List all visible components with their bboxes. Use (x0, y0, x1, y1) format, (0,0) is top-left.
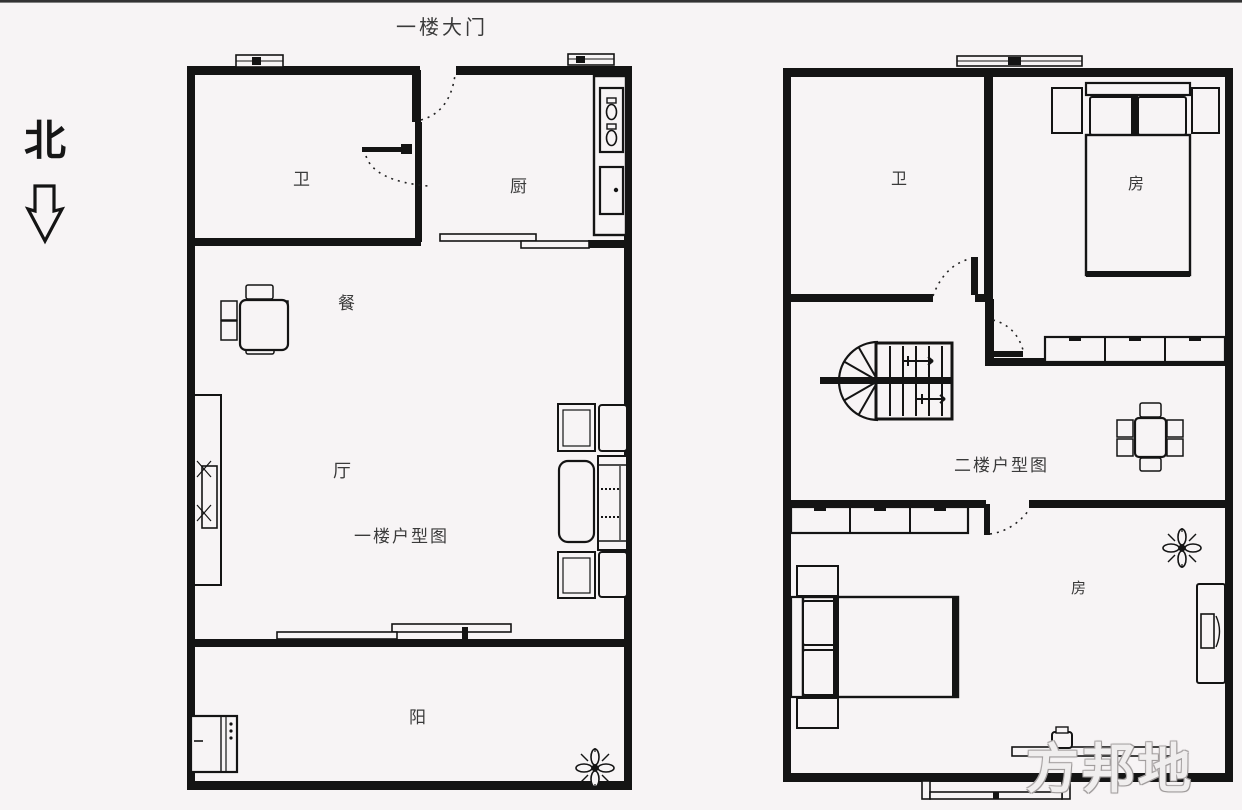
floor2-bathroom-label: 卫 (891, 172, 908, 188)
floor2-bedroom2-door (984, 504, 1029, 535)
tv-cabinet (598, 456, 627, 550)
staircase (820, 342, 952, 420)
plant-icon-floor2 (1163, 528, 1201, 568)
floor1-entrance-label: 一楼大门 (396, 18, 488, 38)
floorplan-drawing (0, 0, 1242, 810)
balcony-sliding-door (277, 624, 511, 639)
floor1-window-right (568, 54, 614, 65)
stove-icon (600, 88, 623, 152)
floor1-living-label: 厅 (333, 462, 352, 480)
floor1-kitchen-label: 厨 (510, 178, 528, 195)
north-label: 北 (24, 120, 66, 162)
wardrobe-top-bedroom (1045, 337, 1225, 362)
floorplan-image: 北 一楼大门 卫 厨 餐 厅 一楼户型图 阳 卫 房 二楼户型图 房 方邦地产 (0, 0, 1242, 810)
floor2-bedroom1-door (991, 320, 1023, 357)
floor2-plan (783, 56, 1233, 799)
sofa-set (558, 404, 627, 598)
wardrobe-bottom-bedroom (791, 507, 968, 533)
north-arrow-icon (28, 186, 62, 241)
kitchen-sliding-door (440, 234, 589, 248)
plant-icon-floor1 (576, 748, 614, 788)
dining-table-set (221, 285, 288, 354)
floor1-plan (187, 54, 632, 790)
floor1-title: 一楼户型图 (354, 528, 449, 545)
floor2-bedroom-bottom-label: 房 (1071, 581, 1087, 596)
floor2-bedroom-top-label: 房 (1128, 177, 1145, 193)
floor1-window-left (236, 55, 283, 67)
kitchen-counter (594, 76, 626, 235)
floor1-bathroom-label: 卫 (293, 171, 311, 188)
bed-bottom-bedroom (791, 566, 958, 728)
bedroom-side-cabinet (1197, 584, 1225, 683)
floor1-dining-label: 餐 (338, 295, 356, 312)
floor2-bathroom-door (933, 257, 978, 296)
floor2-title: 二楼户型图 (954, 457, 1049, 474)
top-edge-line (0, 0, 1242, 3)
floor1-entrance-door (412, 70, 455, 122)
hall-table-set (1117, 403, 1183, 471)
agency-watermark: 方邦地产 (1026, 727, 1242, 810)
sink-icon (600, 167, 623, 214)
floor2-window-top (957, 56, 1082, 66)
living-side-cabinet (194, 395, 221, 585)
floor1-balcony-label: 阳 (409, 709, 427, 726)
washing-machine-icon (191, 716, 237, 772)
